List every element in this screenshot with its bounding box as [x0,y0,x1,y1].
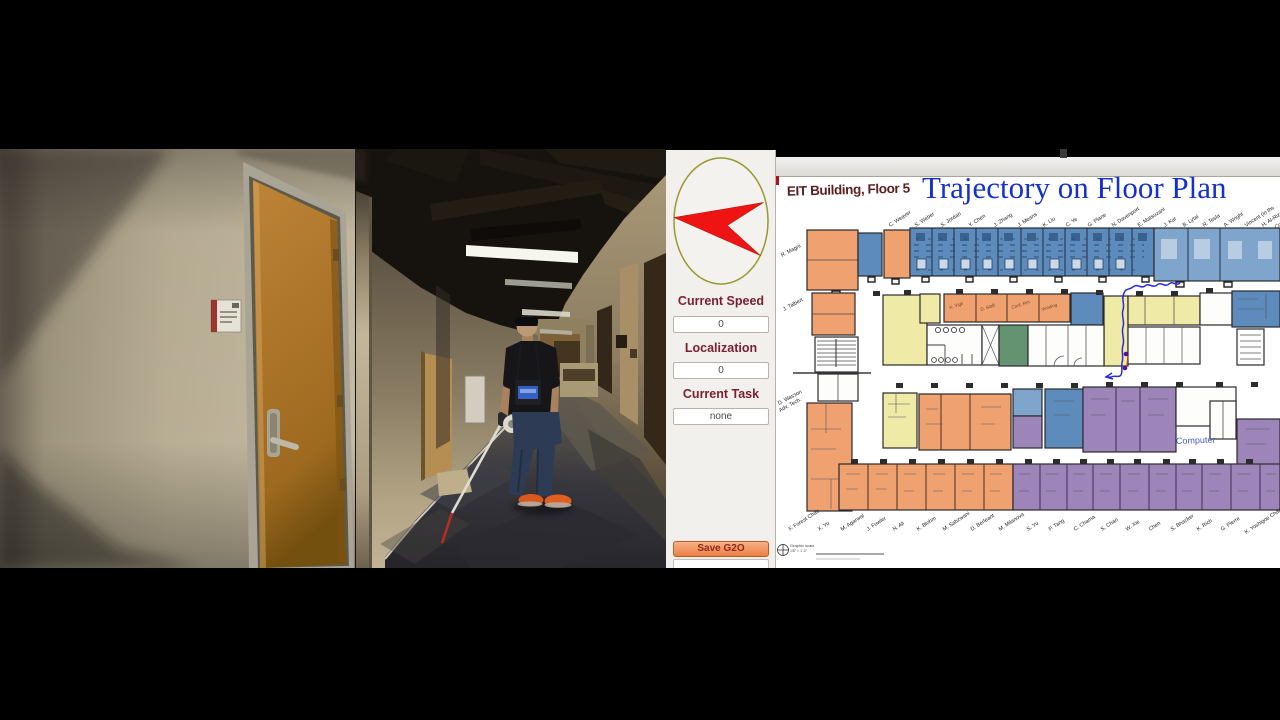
svg-text:S. Chao: S. Chao [1100,517,1120,533]
svg-text:M. Agarwal: M. Agarwal [840,513,866,533]
svg-text:G. Pierre: G. Pierre [1220,516,1241,533]
svg-text:M. Milanova: M. Milanova [998,512,1026,533]
svg-text:S. Jordan: S. Jordan [940,211,963,229]
svg-text:B. Lytal: B. Lytal [1182,214,1200,229]
svg-text:G. Plane: G. Plane [1087,212,1108,228]
svg-text:E. Matsuzani: E. Matsuzani [1137,207,1166,229]
svg-text:J. Fowler: J. Fowler [866,516,888,533]
svg-text:J. Kar: J. Kar [1163,216,1178,229]
svg-text:C. Weaver: C. Weaver [888,210,913,229]
svg-text:M. Sabzwani: M. Sabzwani [942,511,971,533]
svg-text:F. Forest Chair: F. Forest Chair [788,508,821,532]
svg-text:R. Tesla: R. Tesla [1202,213,1222,229]
svg-text:J. Means: J. Means [1017,212,1039,229]
svg-text:N. Davenport: N. Davenport [1111,207,1141,229]
svg-text:S. Bhacker: S. Bhacker [1170,513,1196,533]
svg-text:S. Yu: S. Yu [1026,521,1040,533]
svg-text:A. Wright: A. Wright [1223,211,1245,228]
svg-text:Computer: Computer [1176,435,1216,446]
svg-text:W. Xie: W. Xie [1125,519,1141,533]
svg-text:Chen: Chen [1148,521,1162,533]
svg-text:D. Berleant: D. Berleant [970,513,996,533]
svg-text:C. Chama: C. Chama [1073,514,1097,532]
svg-text:Graphic scale: Graphic scale [790,543,815,548]
svg-text:P. Tang: P. Tang [1048,518,1066,533]
svg-text:1/8" = 1'-0": 1/8" = 1'-0" [790,549,808,553]
svg-text:R. Magni: R. Magni [780,243,802,258]
svg-text:S. Weber: S. Weber [914,211,936,228]
svg-text:J. Talbert: J. Talbert [782,297,804,313]
svg-text:N. Ali: N. Ali [892,521,906,533]
svg-text:X. Yu: X. Yu [817,521,831,533]
svg-text:J. Zhang: J. Zhang [993,212,1014,228]
svg-text:K. Rich: K. Rich [1196,518,1214,532]
svg-text:K. Yoshigoe Chair: K. Yoshigoe Chair [1244,507,1280,535]
svg-text:K. Blohm: K. Blohm [916,515,938,532]
svg-text:Y. Chen: Y. Chen [968,213,987,228]
svg-text:K. Liu: K. Liu [1042,216,1057,229]
svg-text:C. Ye: C. Ye [1065,217,1079,229]
